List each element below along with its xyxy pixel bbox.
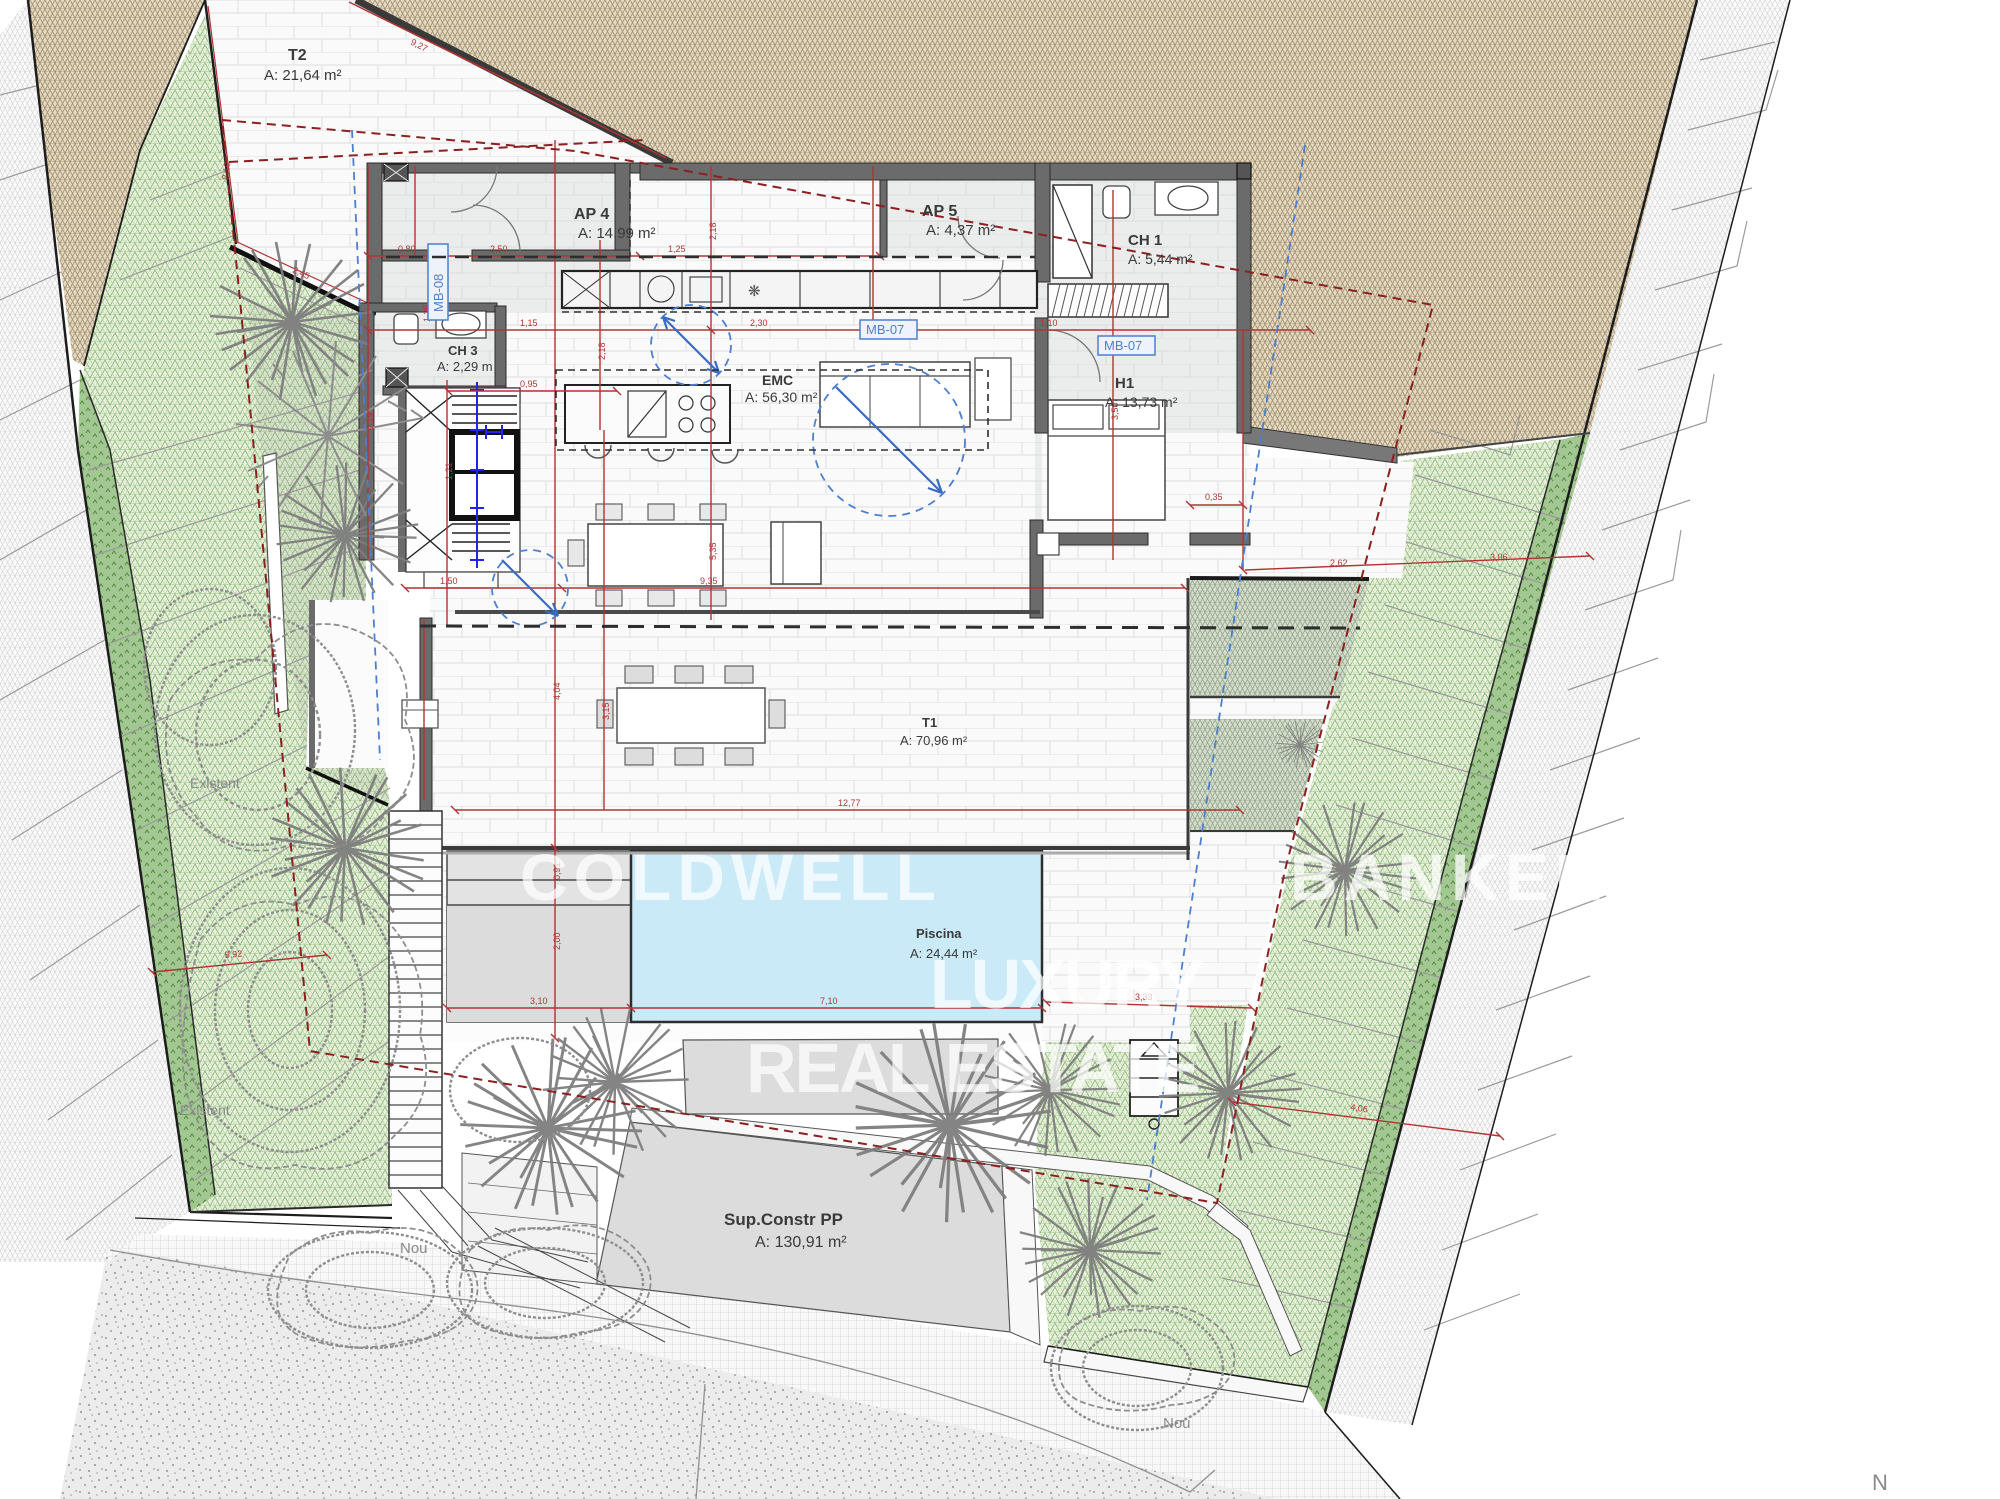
svg-text:N: N <box>1872 1470 1888 1495</box>
svg-text:3,15: 3,15 <box>601 702 611 720</box>
svg-text:2,18: 2,18 <box>708 222 718 240</box>
svg-text:Sup.Constr PP: Sup.Constr PP <box>724 1210 843 1229</box>
svg-text:A: 2,29 m: A: 2,29 m <box>437 359 493 374</box>
svg-text:9,35: 9,35 <box>700 576 718 586</box>
svg-text:1,21: 1,21 <box>444 462 454 480</box>
svg-text:5,35: 5,35 <box>708 542 718 560</box>
svg-text:3,10: 3,10 <box>530 996 548 1006</box>
svg-text:BANKER: BANKER <box>1290 840 1608 914</box>
svg-text:T2: T2 <box>288 47 307 64</box>
svg-text:AP 5: AP 5 <box>922 203 957 220</box>
svg-text:A: 21,64 m²: A: 21,64 m² <box>264 67 342 84</box>
svg-text:A: 14,99 m²: A: 14,99 m² <box>578 225 656 242</box>
svg-text:❋: ❋ <box>748 283 761 300</box>
svg-text:0,80: 0,80 <box>398 244 416 254</box>
svg-text:2,50: 2,50 <box>490 244 508 254</box>
svg-text:1,10: 1,10 <box>1040 318 1058 328</box>
svg-text:MB-08: MB-08 <box>431 274 446 312</box>
svg-text:REAL ESTATE: REAL ESTATE <box>746 1029 1198 1107</box>
svg-text:A: 13,73 m²: A: 13,73 m² <box>1105 394 1178 410</box>
svg-text:COLDWELL: COLDWELL <box>520 840 942 914</box>
svg-text:0,95: 0,95 <box>520 379 538 389</box>
svg-text:A: 56,30 m²: A: 56,30 m² <box>745 389 818 405</box>
svg-text:H1: H1 <box>1115 375 1134 392</box>
svg-text:EMC: EMC <box>762 372 793 388</box>
svg-text:Nou: Nou <box>1163 1415 1191 1432</box>
svg-text:MB-07: MB-07 <box>1104 338 1142 353</box>
svg-text:A: 130,91 m²: A: 130,91 m² <box>755 1234 847 1251</box>
svg-text:3,06: 3,06 <box>1490 552 1508 562</box>
svg-text:A: 4,37 m²: A: 4,37 m² <box>926 222 995 239</box>
svg-text:1,50: 1,50 <box>440 576 458 586</box>
svg-text:0,19: 0,19 <box>365 412 375 430</box>
svg-text:0,35: 0,35 <box>1205 492 1223 502</box>
svg-text:T1: T1 <box>922 715 937 730</box>
svg-text:2,00: 2,00 <box>552 932 562 950</box>
svg-text:2,18: 2,18 <box>597 342 607 360</box>
svg-text:LUXURY: LUXURY <box>930 945 1205 1023</box>
svg-text:Existent: Existent <box>190 775 240 791</box>
svg-text:12,77: 12,77 <box>838 798 861 808</box>
svg-text:A: 70,96 m²: A: 70,96 m² <box>900 733 968 748</box>
svg-text:2,62: 2,62 <box>1330 558 1348 568</box>
svg-text:CH 1: CH 1 <box>1128 232 1162 249</box>
svg-text:CH 3: CH 3 <box>448 343 478 358</box>
svg-text:MB-07: MB-07 <box>866 322 904 337</box>
svg-text:7,10: 7,10 <box>820 996 838 1006</box>
svg-text:2,30: 2,30 <box>750 318 768 328</box>
svg-text:5,92: 5,92 <box>224 949 242 960</box>
svg-text:1,25: 1,25 <box>668 244 686 254</box>
svg-text:Piscina: Piscina <box>916 926 962 941</box>
svg-text:1,15: 1,15 <box>520 318 538 328</box>
svg-text:Nou: Nou <box>400 1240 428 1257</box>
svg-text:A: 5,44 m²: A: 5,44 m² <box>1128 251 1193 267</box>
svg-text:Existent: Existent <box>180 1102 230 1118</box>
svg-text:AP 4: AP 4 <box>574 206 609 223</box>
svg-text:4,04: 4,04 <box>552 682 562 700</box>
